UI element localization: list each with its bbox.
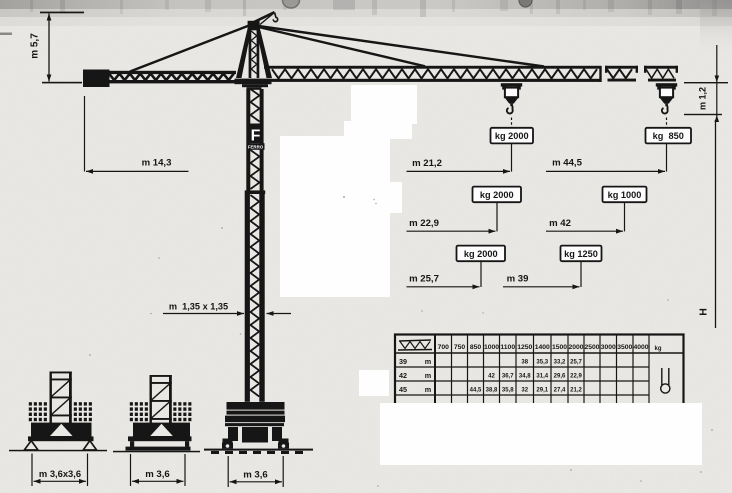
svg-text:3500: 3500 [617,344,632,351]
svg-text:25,7: 25,7 [570,360,582,366]
svg-text:42: 42 [399,371,407,380]
svg-text:kg 1000: kg 1000 [608,190,642,200]
svg-text:34,8: 34,8 [519,374,531,380]
svg-text:kg: kg [654,346,661,352]
svg-text:1000: 1000 [484,344,499,351]
svg-text:32: 32 [521,388,528,394]
svg-text:44,5: 44,5 [470,388,482,394]
svg-text:21,2: 21,2 [570,388,582,394]
svg-text:m 21,2: m 21,2 [412,158,442,169]
svg-text:F: F [251,128,261,145]
svg-text:45: 45 [399,385,407,394]
svg-text:kg 2000: kg 2000 [480,190,514,200]
svg-text:kg 2000: kg 2000 [495,131,529,141]
svg-text:m: m [425,371,431,380]
svg-text:22,9: 22,9 [570,374,582,380]
svg-text:27,4: 27,4 [554,388,566,394]
svg-text:m 42: m 42 [549,218,571,229]
svg-text:1100: 1100 [500,344,515,351]
svg-text:29,1: 29,1 [536,388,548,394]
svg-text:1400: 1400 [535,344,550,351]
svg-text:m 44,5: m 44,5 [552,158,583,169]
svg-text:FERRO: FERRO [248,145,264,150]
svg-text:850: 850 [470,344,482,351]
svg-text:750: 750 [454,344,466,351]
svg-text:35,3: 35,3 [536,360,548,366]
svg-text:4000: 4000 [633,344,648,351]
svg-text:39: 39 [399,357,407,366]
svg-text:m 1,35 x 1,35: m 1,35 x 1,35 [169,302,228,312]
svg-text:2000: 2000 [568,344,583,351]
svg-text:1250: 1250 [517,344,532,351]
svg-text:31,4: 31,4 [536,374,548,380]
svg-text:m 1,2: m 1,2 [698,87,708,110]
svg-text:m: m [425,357,431,366]
svg-text:m 3,6x3,6: m 3,6x3,6 [39,468,81,479]
svg-text:38: 38 [521,360,528,366]
svg-text:m: m [425,385,431,394]
svg-text:700: 700 [438,344,450,351]
svg-text:1500: 1500 [552,344,567,351]
svg-text:2500: 2500 [584,344,599,351]
svg-text:m 3,6: m 3,6 [145,469,170,480]
svg-text:42: 42 [488,374,495,380]
svg-text:H: H [698,308,710,316]
svg-text:3000: 3000 [601,344,616,351]
svg-text:m 14,3: m 14,3 [142,158,172,169]
svg-text:38,8: 38,8 [486,388,498,394]
svg-text:29,6: 29,6 [554,374,566,380]
svg-text:33,2: 33,2 [554,360,566,366]
svg-text:35,8: 35,8 [502,388,514,394]
svg-text:m 25,7: m 25,7 [409,274,439,285]
svg-text:36,7: 36,7 [502,374,514,380]
svg-text:m 5,7: m 5,7 [30,33,41,59]
svg-text:m 3,6: m 3,6 [243,470,268,481]
svg-text:kg 1250: kg 1250 [564,249,598,259]
svg-text:m 39: m 39 [507,274,529,285]
svg-text:m 22,9: m 22,9 [409,218,439,229]
svg-text:kg 2000: kg 2000 [464,249,498,259]
svg-text:kg 850: kg 850 [653,131,684,141]
